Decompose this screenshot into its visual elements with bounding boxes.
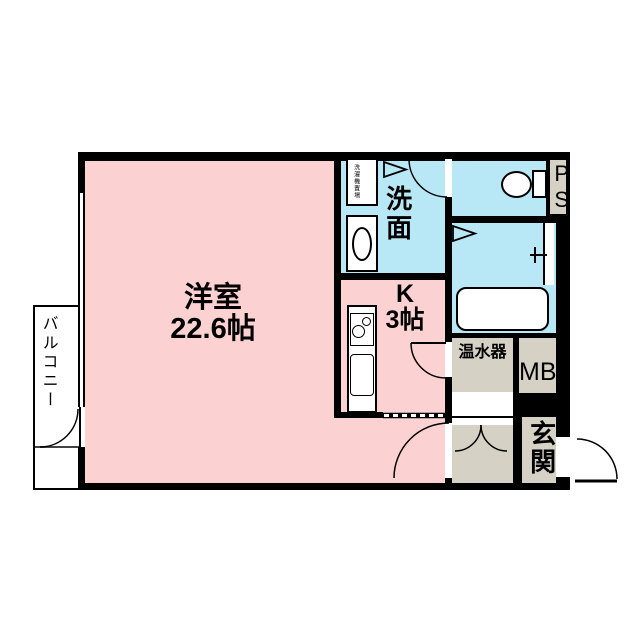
kitchen-door-opening — [445, 342, 452, 377]
wall-top — [78, 152, 570, 161]
washbasin-bowl — [352, 227, 372, 261]
wall-right-stub — [556, 477, 570, 490]
kitchen-sink — [350, 354, 374, 396]
stove-burner-large — [352, 325, 365, 338]
kitchen-name: K — [365, 281, 445, 307]
toilet-bowl — [501, 171, 532, 198]
floor-plan: 洋室 22.6帖 K 3帖 洗面 洗濯機置場 温水器 MB PS 玄関 バルコニ… — [0, 0, 640, 640]
closet-area — [452, 416, 513, 483]
wall-washroom-kitchen — [334, 273, 452, 280]
entrance-door-opening — [556, 437, 570, 477]
kitchen-label: K 3帖 — [365, 281, 445, 333]
bath-door-strip — [543, 223, 554, 285]
water-heater-label: 温水器 — [452, 344, 513, 362]
closet-opening-strip — [452, 416, 513, 425]
wall-left-upper — [78, 152, 85, 193]
living-room-label: 洋室 22.6帖 — [118, 283, 308, 345]
wall-bath-hall — [445, 333, 570, 338]
washroom-door-opening — [445, 159, 452, 197]
washroom-label: 洗面 — [383, 185, 412, 243]
balcony-divider-line — [35, 446, 79, 448]
hall-strip — [452, 392, 513, 416]
living-room-name: 洋室 — [118, 283, 308, 314]
pipe-space-label: PS — [549, 161, 573, 213]
kitchen-size: 3帖 — [365, 307, 445, 333]
wall-toilet-bath — [445, 216, 570, 223]
balcony-label: バルコニー — [39, 315, 57, 410]
wall-room-kitchen — [334, 152, 341, 418]
laundry-label: 洗濯機置場 — [352, 164, 359, 199]
window-left — [78, 193, 85, 407]
meter-box-label: MB — [519, 359, 556, 387]
room-door-opening — [445, 423, 452, 478]
toilet-tank — [532, 170, 547, 198]
washing-machine-box — [346, 158, 378, 206]
front-door-arc — [577, 439, 617, 479]
wall-bottom — [78, 483, 570, 490]
bathtub — [456, 287, 549, 331]
wall-left-lower — [78, 447, 85, 490]
living-room-size: 22.6帖 — [118, 314, 308, 345]
wall-mb-entrance — [513, 393, 570, 417]
wall-closet-entrance — [513, 417, 522, 483]
entrance-label: 玄関 — [527, 420, 556, 476]
